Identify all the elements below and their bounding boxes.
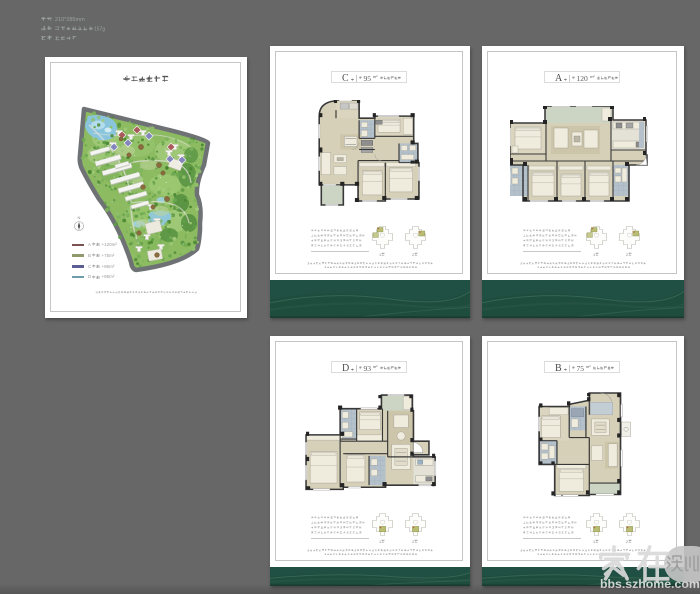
svg-text:2: 2 bbox=[412, 540, 414, 544]
svg-text:210*285mm: 210*285mm bbox=[55, 17, 85, 23]
svg-text:1: 1 bbox=[379, 253, 381, 257]
svg-text:2: 2 bbox=[626, 253, 628, 257]
svg-text:1: 1 bbox=[593, 253, 595, 257]
svg-text:2: 2 bbox=[412, 253, 414, 257]
svg-text:2: 2 bbox=[626, 540, 628, 544]
svg-text:157g: 157g bbox=[94, 27, 105, 33]
svg-text:1: 1 bbox=[593, 540, 595, 544]
svg-text:N: N bbox=[78, 215, 81, 220]
svg-text:1: 1 bbox=[379, 540, 381, 544]
